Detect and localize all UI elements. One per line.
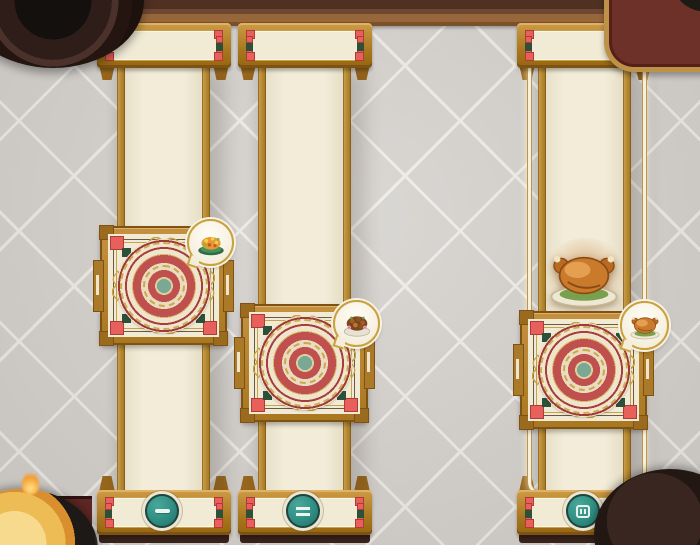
counter-top-right xyxy=(604,0,700,72)
veggie-dish-icon xyxy=(195,229,227,256)
collapse-button-middle[interactable] xyxy=(286,494,320,528)
seat-panel-icon xyxy=(576,505,590,518)
dining-room-scene xyxy=(0,0,700,545)
meat-dish-icon xyxy=(341,310,373,337)
equals-icon xyxy=(296,507,310,516)
table-middle-bottom-cap xyxy=(238,490,372,535)
table-shadow xyxy=(240,535,370,543)
wok-icon xyxy=(667,0,700,19)
minus-icon xyxy=(155,509,170,513)
collapse-button-left[interactable] xyxy=(145,494,179,528)
ornate-plate xyxy=(537,323,631,417)
order-bubble-left[interactable] xyxy=(187,219,234,266)
order-bubble-right[interactable] xyxy=(620,301,669,350)
roast-chicken-platter[interactable] xyxy=(545,243,623,308)
roast-chicken-icon xyxy=(628,311,662,340)
cap-panel xyxy=(246,30,364,61)
flame-icon xyxy=(22,471,39,495)
table-middle-top-cap xyxy=(238,23,372,68)
table-middle-body[interactable] xyxy=(258,62,351,494)
table-left-bottom-cap xyxy=(97,490,231,535)
table-shadow xyxy=(99,535,229,543)
order-bubble-middle[interactable] xyxy=(333,300,380,347)
